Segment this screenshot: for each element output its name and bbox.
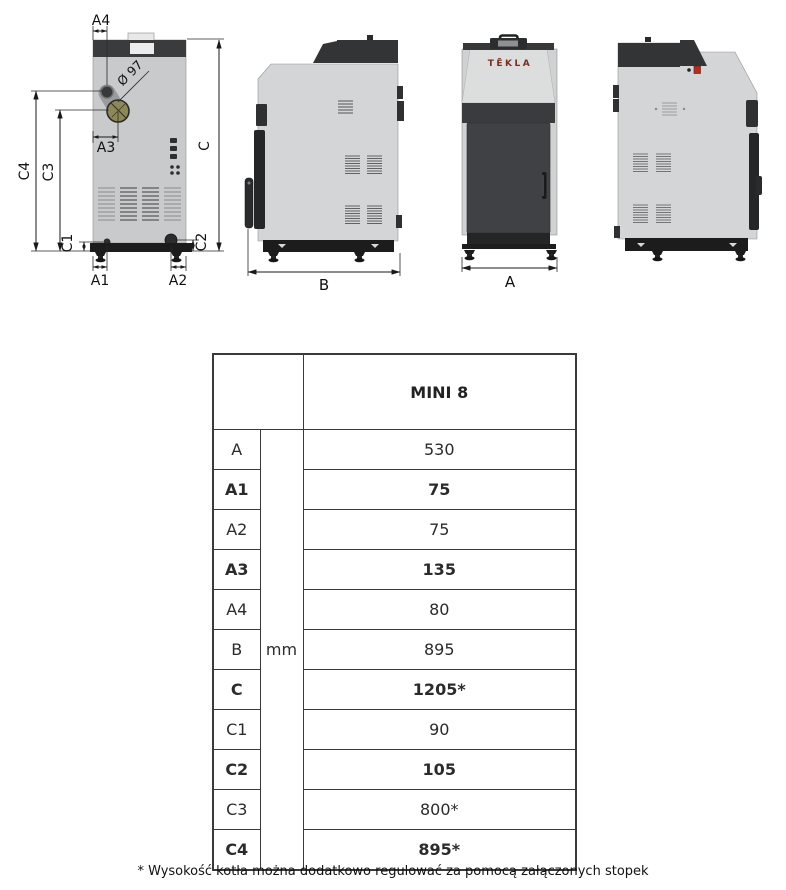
dim-value-cell: 800*	[303, 790, 576, 830]
rear-base	[90, 243, 192, 252]
top-cap	[645, 37, 651, 42]
front-door	[467, 123, 550, 233]
dim-label-a4: A4	[92, 13, 111, 29]
empty-header-cell	[213, 354, 303, 430]
dim-label-cell: C2	[213, 750, 260, 790]
dim-label-cell: C3	[213, 790, 260, 830]
page: A4 Ø 97 A3 C C4 C3 C1	[0, 0, 786, 890]
dim-label-cell: C	[213, 670, 260, 710]
dim-value-cell: 75	[303, 510, 576, 550]
dim-label-a2: A2	[169, 273, 187, 289]
dim-label-cell: A2	[213, 510, 260, 550]
dim-label-c1: C1	[60, 234, 76, 253]
dim-label-a3: A3	[97, 140, 115, 156]
door-handle	[756, 176, 762, 195]
dim-value-cell: 135	[303, 550, 576, 590]
foot	[652, 251, 663, 261]
dim-label-cell: A	[213, 430, 260, 470]
rear-top-collar	[128, 33, 154, 41]
rear-tab	[397, 101, 404, 121]
dim-label-cell: A1	[213, 470, 260, 510]
rear-tab	[614, 226, 620, 238]
side-view-right	[613, 37, 762, 261]
dim-label-c: C	[197, 141, 213, 151]
door-edge-rail	[254, 130, 265, 229]
top-cap	[367, 35, 373, 40]
foot	[171, 252, 182, 262]
unit-cell: mm	[260, 430, 303, 871]
front-base-bar	[462, 244, 556, 249]
dim-value-cell: 1205*	[303, 670, 576, 710]
door-handle	[245, 178, 253, 228]
dimensions-table: MINI 8 A mm 530 A1 75 A2 75 A3 135 A4 80…	[212, 353, 577, 871]
rear-tab	[397, 86, 403, 99]
indicator-dot	[687, 68, 691, 72]
dim-label-cell: A3	[213, 550, 260, 590]
foot	[354, 252, 365, 262]
boiler-dimension-drawing: A4 Ø 97 A3 C C4 C3 C1	[0, 0, 786, 348]
dim-label-c3: C3	[41, 163, 57, 182]
dim-value-cell: 80	[303, 590, 576, 630]
rear-tab	[613, 85, 619, 98]
side-top-block	[337, 40, 398, 63]
power-switch	[694, 66, 701, 74]
foot	[268, 252, 279, 262]
upper-port	[101, 86, 113, 98]
dim-value-cell: 895	[303, 630, 576, 670]
dim-label-b: B	[319, 276, 329, 294]
foot	[95, 252, 106, 262]
rear-tab	[613, 99, 619, 112]
dim-value-cell: 105	[303, 750, 576, 790]
dim-label-cell: A4	[213, 590, 260, 630]
front-mid-band	[462, 103, 555, 123]
controller-display	[498, 41, 518, 47]
side-body	[258, 64, 398, 241]
foot	[735, 251, 746, 261]
dim-label-a1: A1	[91, 273, 109, 289]
side-top-wedge	[313, 41, 337, 63]
table-row: A mm 530	[213, 430, 576, 470]
hinge-block	[256, 104, 267, 126]
front-view: TĒKLA A	[462, 36, 557, 292]
dim-value-cell: 75	[303, 470, 576, 510]
front-base	[467, 233, 550, 244]
foot	[464, 250, 475, 260]
rear-tab	[396, 215, 402, 228]
side-view-b: B	[245, 35, 404, 294]
dim-value-cell: 530	[303, 430, 576, 470]
dim-label-a: A	[505, 273, 516, 291]
dim-label-cell: C1	[213, 710, 260, 750]
dim-label-c4: C4	[17, 162, 33, 181]
dim-label-cell: B	[213, 630, 260, 670]
dim-value-cell: 90	[303, 710, 576, 750]
hinge-block	[746, 100, 758, 127]
model-header: MINI 8	[303, 354, 576, 430]
dim-label-c2: C2	[194, 233, 210, 252]
rear-view: A4 Ø 97 A3 C C4 C3 C1	[17, 13, 224, 289]
footnote: * Wysokość kotła można dodatkowo regulow…	[0, 864, 786, 879]
brand-logo: TĒKLA	[488, 58, 532, 69]
front-hood	[462, 49, 555, 103]
side-top-block	[618, 43, 680, 67]
rear-rating-plate	[130, 43, 154, 54]
foot	[546, 250, 557, 260]
